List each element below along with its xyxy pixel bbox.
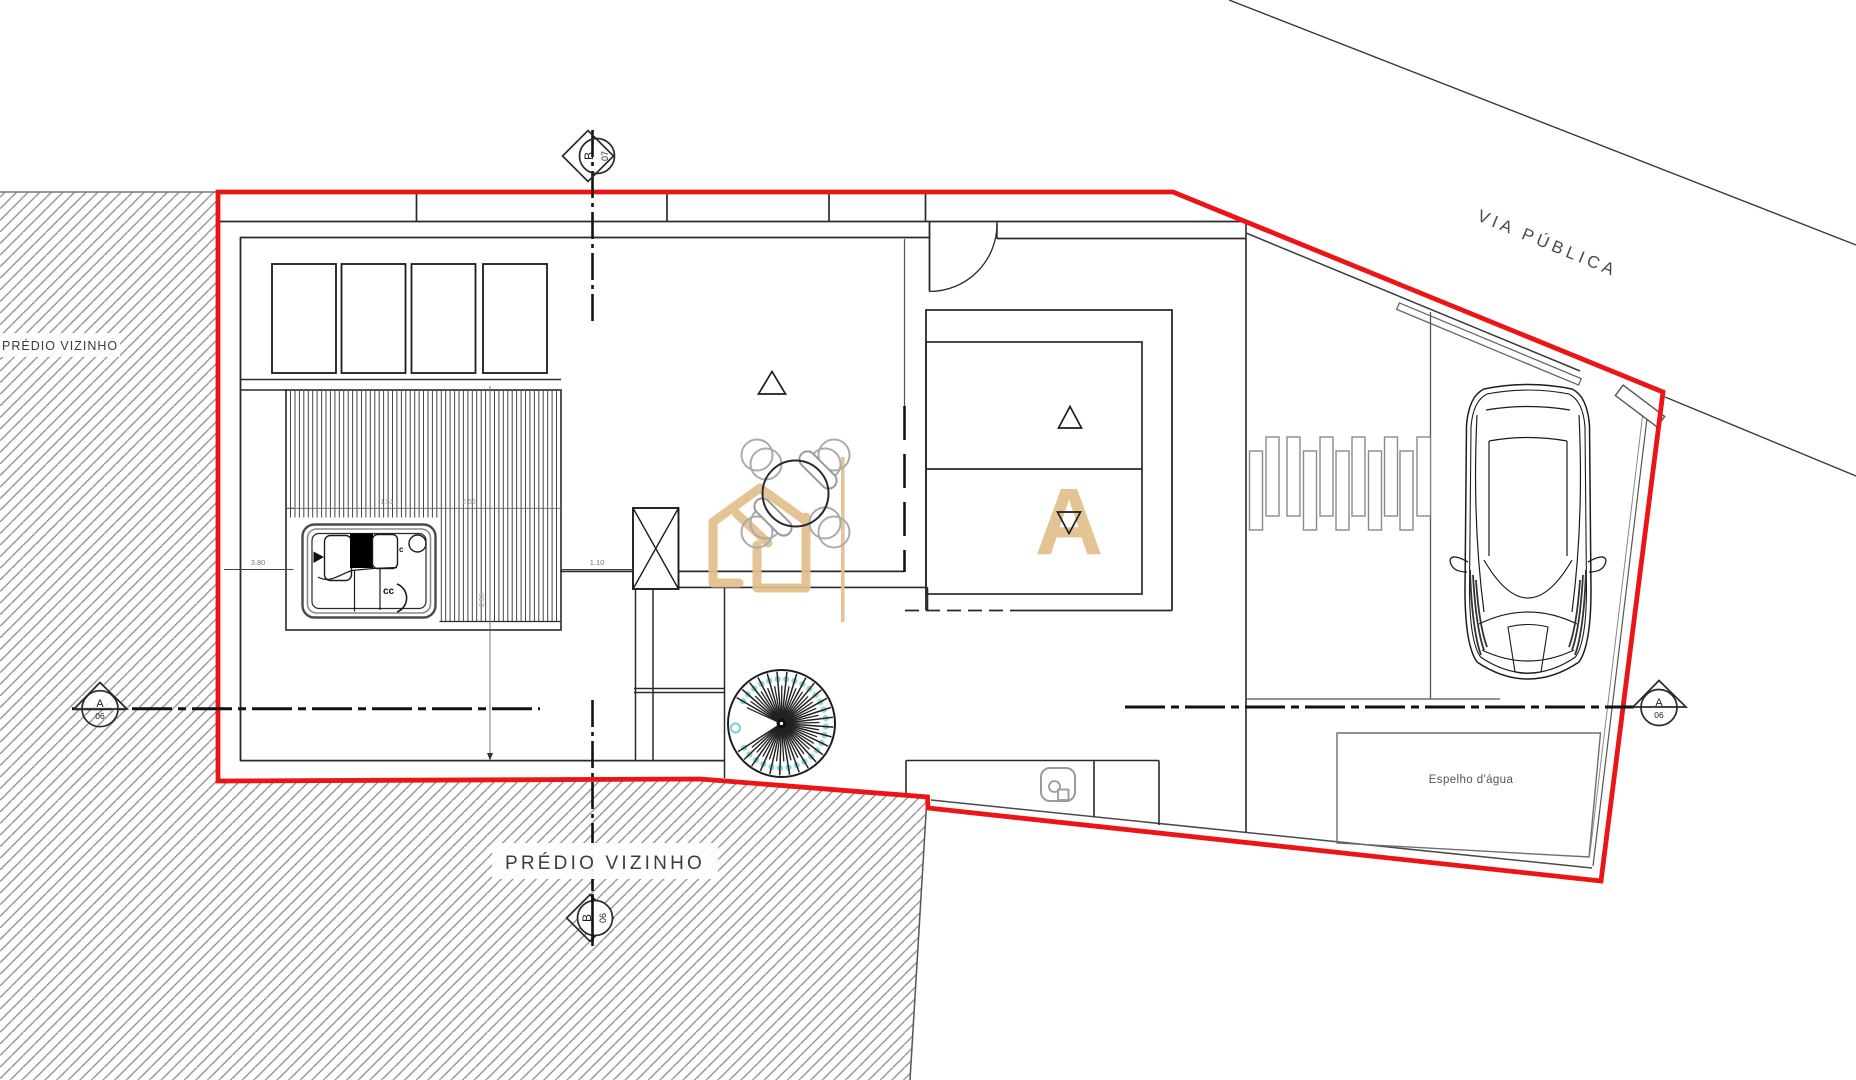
svg-text:3.80: 3.80 <box>251 558 266 567</box>
svg-text:A: A <box>96 698 104 710</box>
svg-text:07: 07 <box>600 151 610 161</box>
svg-text:B: B <box>582 152 596 160</box>
svg-text:1.51: 1.51 <box>380 499 394 506</box>
svg-text:06: 06 <box>1654 710 1664 720</box>
svg-text:06: 06 <box>598 913 608 923</box>
svg-text:2.56: 2.56 <box>462 499 476 506</box>
svg-text:A: A <box>1035 469 1104 575</box>
svg-text:Espelho d'água: Espelho d'água <box>1429 774 1514 786</box>
svg-text:PRÉDIO VIZINHO: PRÉDIO VIZINHO <box>505 853 705 874</box>
svg-text:2.56: 2.56 <box>479 593 486 607</box>
svg-text:1.10: 1.10 <box>590 558 605 567</box>
svg-text:c: c <box>399 545 404 554</box>
svg-text:cc: cc <box>383 586 395 597</box>
svg-text:A: A <box>1655 697 1663 709</box>
svg-text:06: 06 <box>95 711 105 721</box>
svg-text:PRÉDIO VIZINHO: PRÉDIO VIZINHO <box>2 338 118 353</box>
